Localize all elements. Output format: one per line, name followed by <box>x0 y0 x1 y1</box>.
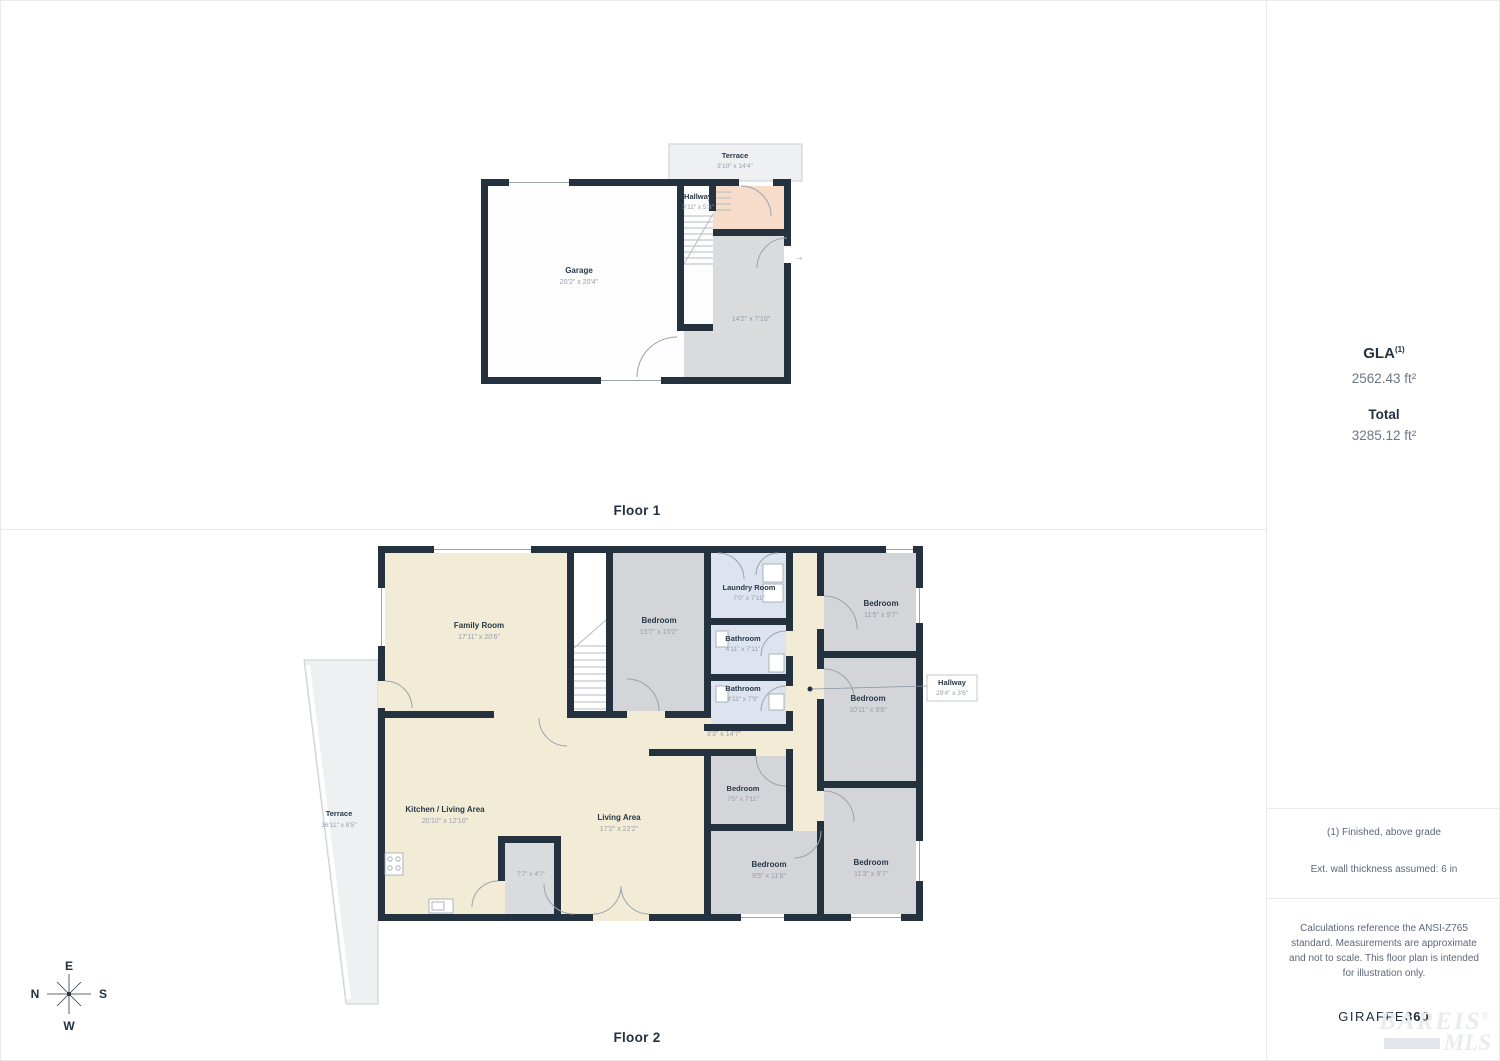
room-label-bedroom-e: Bedroom <box>751 860 786 869</box>
washer <box>763 564 783 582</box>
compass-east: E <box>65 959 73 973</box>
gla-label: GLA(1) <box>1267 345 1500 362</box>
room-label-terrace2: Terrace <box>326 809 353 818</box>
floor1-caption: Floor 1 <box>537 503 737 518</box>
stove <box>385 853 403 875</box>
room-dims-laundry: 7'0" x 7'11" <box>733 595 765 602</box>
callout-hallway-dims: 29'4" x 3'6" <box>936 690 969 697</box>
sidebar-divider-2 <box>1267 898 1500 899</box>
room-label-family: Family Room <box>454 621 504 630</box>
room-label-bedroom-f: Bedroom <box>853 858 888 867</box>
callout-hallway-name: Hallway <box>938 678 967 687</box>
info-sidebar: GLA(1) 2562.43 ft² Total 3285.12 ft² (1)… <box>1266 1 1500 1061</box>
room-label-terrace: Terrace <box>722 151 749 160</box>
room-dims-living: 17'2" x 22'2" <box>600 826 639 833</box>
room-dims-bedroom-b: 11'5" x 9'7" <box>864 612 898 619</box>
room-dims-garage: 20'2" x 20'4" <box>560 279 599 286</box>
room-dims-bathroom-b: 4'11" x 7'9" <box>727 696 759 703</box>
room-label-bedroom-c: Bedroom <box>850 694 885 703</box>
room-dims-bedroom-d: 7'5" x 7'11" <box>727 796 759 803</box>
room-label-bedroom-a: Bedroom <box>641 616 676 625</box>
sink <box>429 899 453 913</box>
room-dims-bedroom-c: 10'11" x 9'6" <box>849 707 887 714</box>
room-label-garage: Garage <box>565 266 593 275</box>
room-dims-terrace: 3'10" x 14'4" <box>717 163 753 170</box>
note-finished: (1) Finished, above grade <box>1267 827 1500 838</box>
room-label-laundry: Laundry Room <box>723 583 776 592</box>
room-label-living: Living Area <box>597 813 641 822</box>
disclaimer-text: Calculations reference the ANSI-Z765 sta… <box>1285 921 1483 981</box>
room-label-hallway: Hallway <box>684 192 713 201</box>
room-dims-terrace2: 36'11" x 8'5" <box>321 822 357 829</box>
bath-sink-1 <box>769 654 784 672</box>
compass: E N S W <box>21 944 117 1040</box>
compass-west: W <box>63 1019 75 1033</box>
room-dims-hallway: 3'11" x 5'3" <box>682 204 714 211</box>
floor1-room-fills <box>488 186 784 377</box>
room-dims-side-room: 14'2" x 7'10" <box>732 316 771 323</box>
corridor-dims: 3'3" x 14'7" <box>707 731 742 738</box>
floor1-entry-arrow: → <box>794 252 804 263</box>
room-dims-bedroom-a: 15'7" x 10'2" <box>640 629 679 636</box>
room-dims-family: 17'11" x 20'6" <box>458 634 500 641</box>
sidebar-divider-1 <box>1267 808 1500 809</box>
gla-footnote-marker: (1) <box>1395 345 1405 354</box>
room-dims-bedroom-e: 9'5" x 11'8" <box>752 873 786 880</box>
compass-north: N <box>31 987 40 1001</box>
floor2-caption: Floor 2 <box>537 1030 737 1045</box>
room-label-bathroom-b: Bathroom <box>725 684 761 693</box>
gla-value: 2562.43 ft² <box>1267 371 1500 386</box>
bareis-mls-watermark: BAREIS® MLS <box>1379 1011 1491 1054</box>
room-dims-kitchen: 20'10" x 12'10" <box>422 818 469 825</box>
room-dims-bedroom-f: 11'3" x 9'7" <box>854 871 888 878</box>
room-label-bedroom-b: Bedroom <box>863 599 898 608</box>
compass-center <box>67 992 71 996</box>
section-divider <box>1 529 1266 530</box>
total-label: Total <box>1267 407 1500 422</box>
compass-south: S <box>99 987 107 1001</box>
floor1-plan: → Terrace 3'10" x 14'4" Hallway 3'11" x … <box>461 136 811 396</box>
note-wall-thickness: Ext. wall thickness assumed: 6 in <box>1267 864 1500 875</box>
floorplan-page: → Terrace 3'10" x 14'4" Hallway 3'11" x … <box>0 0 1500 1061</box>
room-label-kitchen: Kitchen / Living Area <box>405 805 485 814</box>
room-label-bedroom-d: Bedroom <box>727 784 760 793</box>
floor2-plan: Hallway 29'4" x 3'6" Family Room 17'11" … <box>291 536 981 1016</box>
watermark-bar <box>1384 1038 1440 1049</box>
closet-dims: 7'7" x 4'7" <box>517 871 546 878</box>
bath-sink-2 <box>769 694 784 710</box>
room-label-bathroom-a: Bathroom <box>725 634 761 643</box>
total-value: 3285.12 ft² <box>1267 428 1500 443</box>
room-dims-bathroom-a: 4'11" x 7'11" <box>726 646 761 653</box>
